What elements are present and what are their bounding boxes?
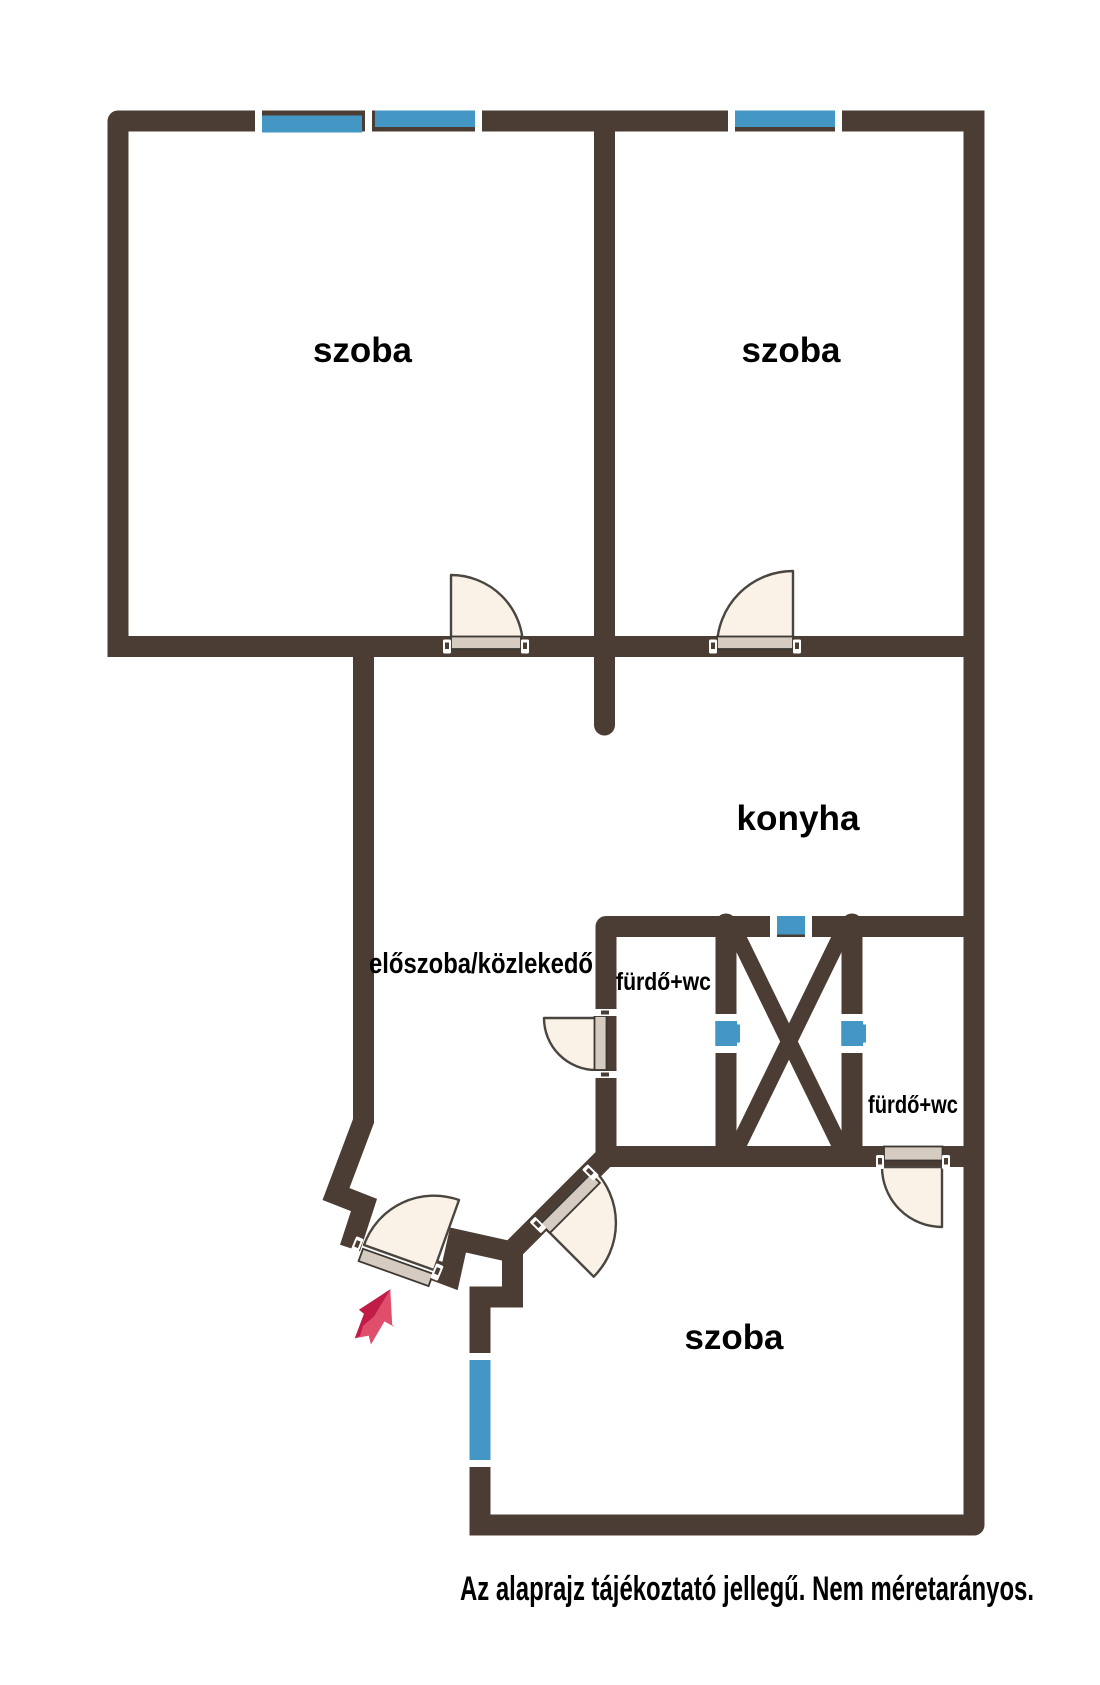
svg-text:fürdő+wc: fürdő+wc <box>868 1091 958 1119</box>
svg-text:Az alaprajz tájékoztató jelleg: Az alaprajz tájékoztató jellegű. Nem mér… <box>460 1570 1034 1608</box>
svg-text:előszoba/közlekedő: előszoba/közlekedő <box>369 948 593 980</box>
svg-text:fürdő+wc: fürdő+wc <box>616 968 711 996</box>
svg-text:szoba: szoba <box>685 1318 785 1357</box>
svg-text:konyha: konyha <box>737 799 861 838</box>
svg-text:szoba: szoba <box>742 331 842 370</box>
svg-text:szoba: szoba <box>313 331 413 370</box>
